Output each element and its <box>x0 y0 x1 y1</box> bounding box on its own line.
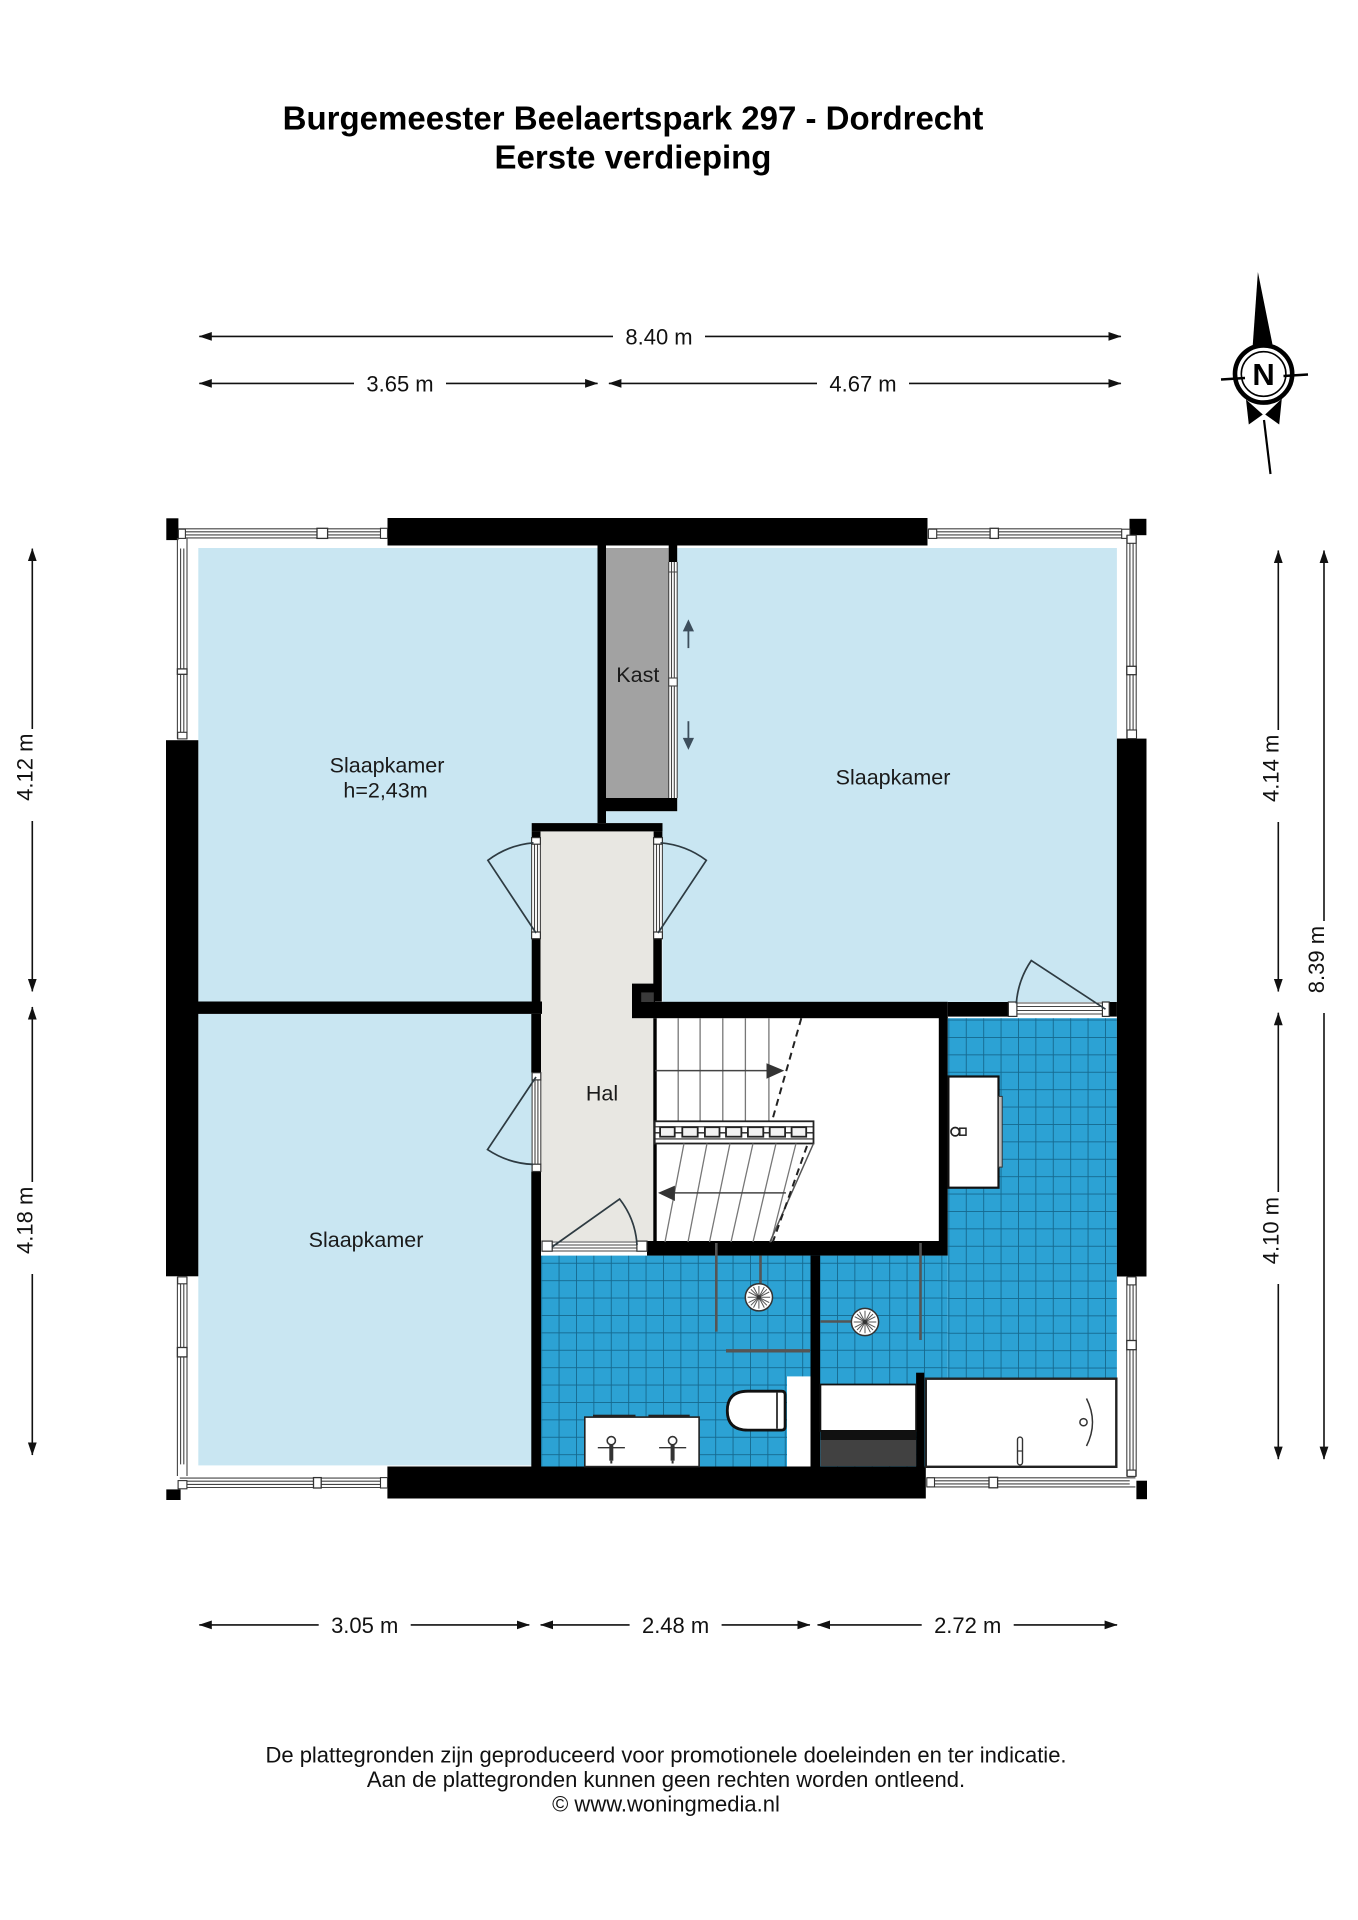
svg-text:8.40 m: 8.40 m <box>625 324 692 349</box>
svg-text:h=2,43m: h=2,43m <box>343 779 427 803</box>
svg-text:Slaapkamer: Slaapkamer <box>330 754 445 778</box>
svg-text:4.18 m: 4.18 m <box>12 1187 37 1254</box>
svg-text:Hal: Hal <box>586 1082 618 1106</box>
svg-text:De plattegronden zijn geproduc: De plattegronden zijn geproduceerd voor … <box>265 1742 1066 1767</box>
svg-text:Slaapkamer: Slaapkamer <box>836 766 951 790</box>
svg-text:Aan de plattegronden kunnen ge: Aan de plattegronden kunnen geen rechten… <box>367 1767 965 1792</box>
svg-text:Eerste verdieping: Eerste verdieping <box>495 138 772 175</box>
svg-text:2.72 m: 2.72 m <box>934 1613 1001 1638</box>
svg-text:3.65 m: 3.65 m <box>366 371 433 396</box>
svg-text:N: N <box>1252 357 1274 392</box>
svg-text:Kast: Kast <box>616 663 659 687</box>
svg-text:Burgemeester Beelaertspark 297: Burgemeester Beelaertspark 297 - Dordrec… <box>283 100 984 137</box>
svg-text:© www.woningmedia.nl: © www.woningmedia.nl <box>552 1791 780 1816</box>
svg-text:2.48 m: 2.48 m <box>642 1613 709 1638</box>
svg-text:Slaapkamer: Slaapkamer <box>309 1228 424 1252</box>
svg-text:4.14 m: 4.14 m <box>1258 735 1283 802</box>
svg-text:3.05 m: 3.05 m <box>331 1613 398 1638</box>
svg-text:4.10 m: 4.10 m <box>1258 1197 1283 1264</box>
svg-text:4.67 m: 4.67 m <box>829 371 896 396</box>
svg-text:4.12 m: 4.12 m <box>12 734 37 801</box>
svg-text:8.39 m: 8.39 m <box>1304 926 1329 993</box>
